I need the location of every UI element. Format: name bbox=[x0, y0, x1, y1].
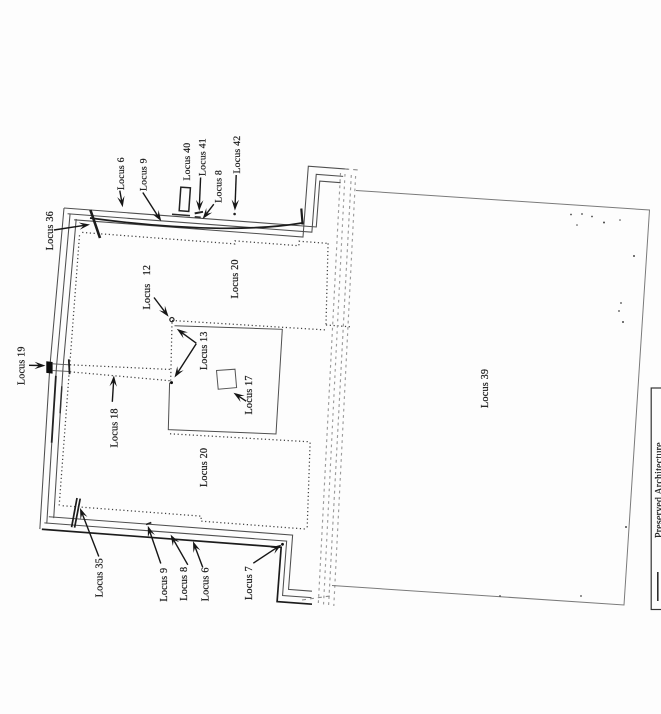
svg-text:Locus 42: Locus 42 bbox=[232, 136, 243, 174]
svg-text:Locus 20: Locus 20 bbox=[199, 448, 210, 487]
svg-text:Locus 9: Locus 9 bbox=[138, 158, 149, 191]
svg-text:Locus 12: Locus 12 bbox=[142, 265, 153, 310]
svg-text:Locus 35: Locus 35 bbox=[94, 558, 105, 597]
svg-text:Locus 41: Locus 41 bbox=[197, 138, 208, 176]
svg-text:Locus 9: Locus 9 bbox=[159, 568, 170, 602]
svg-text:Locus 6: Locus 6 bbox=[116, 157, 127, 190]
svg-text:Locus 13: Locus 13 bbox=[199, 331, 210, 370]
svg-text:Preserved Architecture: Preserved Architecture bbox=[654, 442, 661, 538]
svg-text:Locus 6: Locus 6 bbox=[200, 567, 211, 601]
svg-text:Locus 17: Locus 17 bbox=[244, 375, 255, 414]
svg-text:Locus 8: Locus 8 bbox=[179, 567, 190, 601]
svg-text:Locus 19: Locus 19 bbox=[17, 346, 28, 385]
svg-text:Locus 36: Locus 36 bbox=[45, 211, 56, 250]
svg-text:Locus 7: Locus 7 bbox=[244, 566, 255, 600]
svg-text:Locus 18: Locus 18 bbox=[110, 408, 121, 447]
svg-text:Locus 8: Locus 8 bbox=[213, 170, 224, 203]
svg-text:Locus 39: Locus 39 bbox=[480, 369, 491, 408]
svg-text:Locus 20: Locus 20 bbox=[230, 259, 241, 298]
svg-text:Locus 40: Locus 40 bbox=[182, 143, 193, 181]
